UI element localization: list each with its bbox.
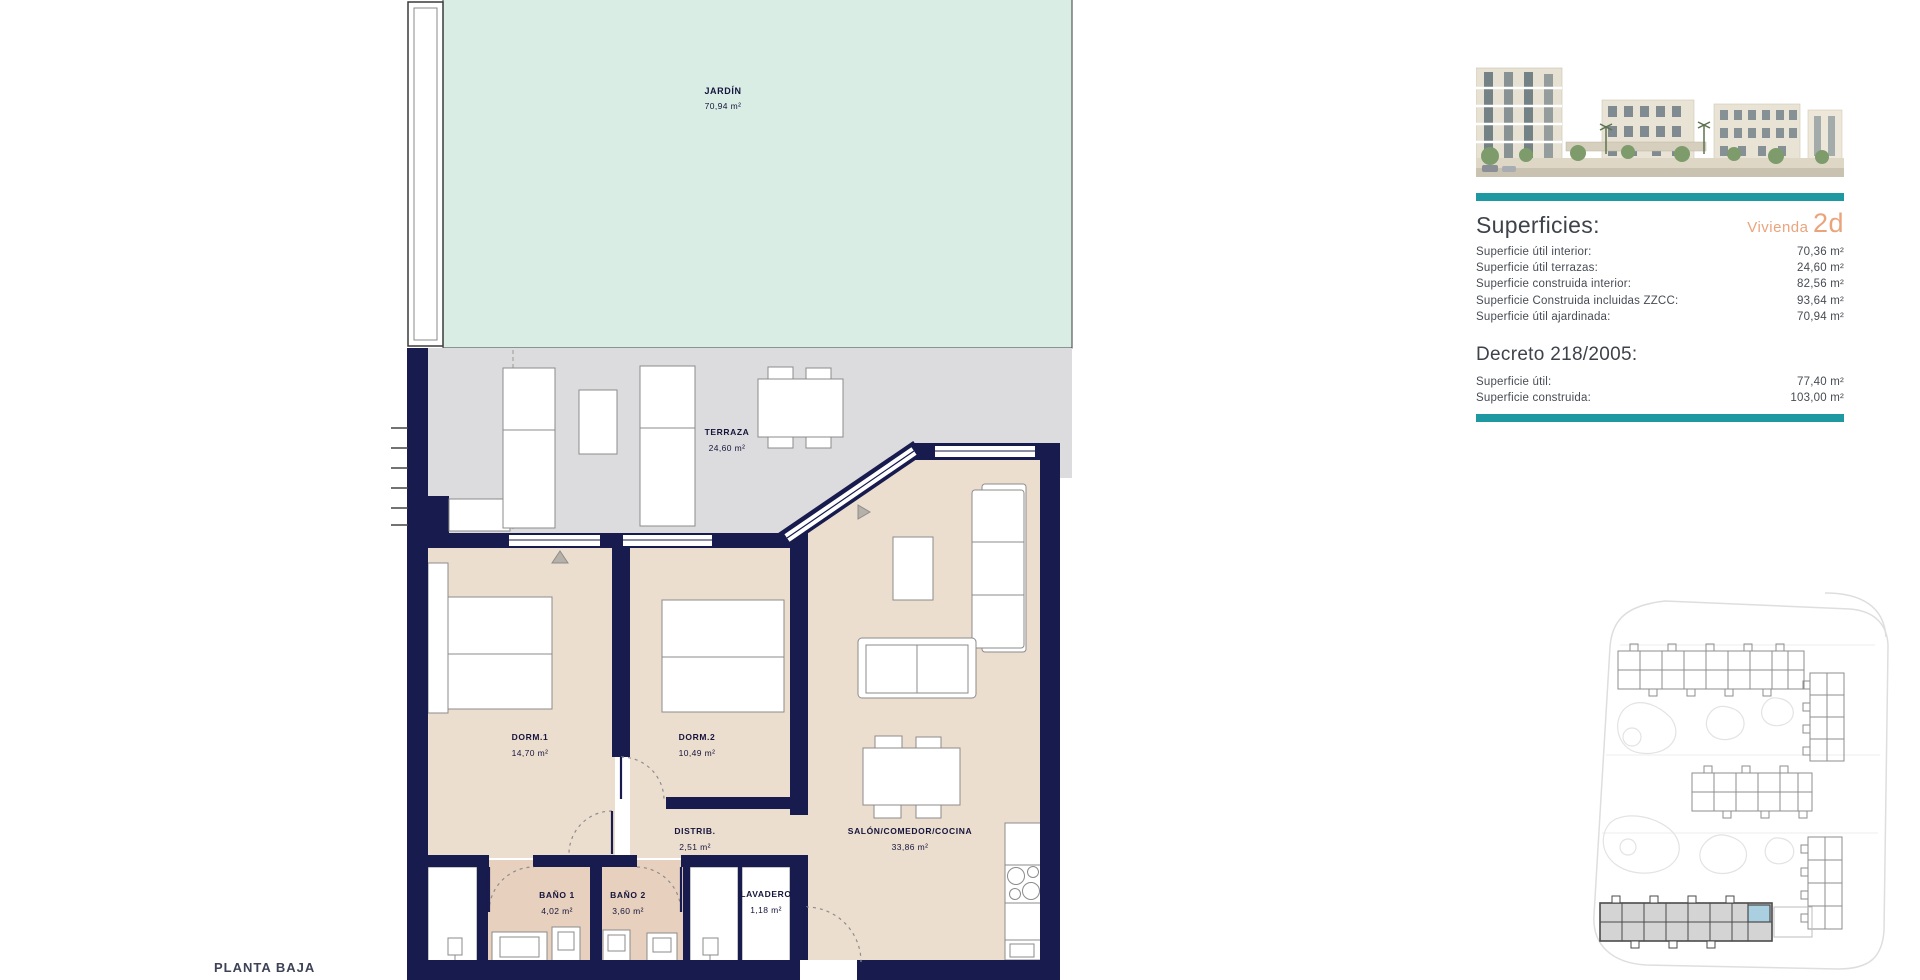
building-render — [1476, 54, 1844, 186]
teal-divider-bottom — [1476, 414, 1844, 422]
vivienda-label: Vivienda — [1747, 219, 1808, 236]
room-label-distrib: DISTRIB. — [674, 826, 715, 836]
site-row-highlighted — [1600, 896, 1812, 948]
site-row-middle — [1692, 766, 1812, 818]
room-area-salon: 33,86 m² — [892, 842, 929, 852]
decreto-row: Superficie construida:103,00 m² — [1476, 390, 1844, 406]
row-label: Superficie útil interior: — [1476, 244, 1592, 260]
row-value: 24,60 m² — [1797, 260, 1844, 276]
stair-ticks — [391, 428, 408, 525]
plan-title: PLANTA BAJA — [214, 960, 315, 975]
site-plan-highlighted-unit — [1748, 905, 1770, 922]
superficies-row: Superficie útil ajardinada:70,94 m² — [1476, 309, 1844, 325]
room-area-bano1: 4,02 m² — [541, 906, 573, 916]
superficies-row: Superficie útil terrazas:24,60 m² — [1476, 260, 1844, 276]
garden-area: JARDÍN 70,94 m² — [408, 0, 1072, 348]
superficies-row: Superficie Construida incluidas ZZCC:93,… — [1476, 293, 1844, 309]
row-value: 70,36 m² — [1797, 244, 1844, 260]
teal-divider-top — [1476, 193, 1844, 201]
row-value: 93,64 m² — [1797, 293, 1844, 309]
room-area-distrib: 2,51 m² — [679, 842, 711, 852]
room-label-bano1: BAÑO 1 — [539, 890, 575, 900]
room-label-dorm2: DORM.2 — [679, 732, 716, 742]
site-row-top — [1618, 644, 1804, 696]
row-label: Superficie útil terrazas: — [1476, 260, 1598, 276]
room-area-jardin: 70,94 m² — [705, 101, 742, 111]
room-label-terraza: TERRAZA — [705, 427, 750, 437]
superficies-row: Superficie útil interior:70,36 m² — [1476, 244, 1844, 260]
floor-plan: JARDÍN 70,94 m² TERRAZA 24,60 m² — [0, 0, 1100, 980]
decreto-rows: Superficie útil:77,40 m² Superficie cons… — [1476, 374, 1844, 406]
superficies-header: Superficies: Vivienda 2d — [1476, 208, 1844, 239]
row-label: Superficie útil ajardinada: — [1476, 309, 1611, 325]
room-area-lavadero: 1,18 m² — [750, 905, 782, 915]
decreto-row: Superficie útil:77,40 m² — [1476, 374, 1844, 390]
row-value: 70,94 m² — [1797, 309, 1844, 325]
superficies-title: Superficies: — [1476, 212, 1600, 239]
vivienda-tag: Vivienda 2d — [1747, 208, 1844, 239]
room-area-dorm1: 14,70 m² — [512, 748, 549, 758]
floorplan-sheet: JARDÍN 70,94 m² TERRAZA 24,60 m² — [0, 0, 1920, 980]
superficies-rows: Superficie útil interior:70,36 m² Superf… — [1476, 244, 1844, 325]
row-label: Superficie construida: — [1476, 390, 1591, 406]
site-plan — [1570, 585, 1920, 980]
room-area-bano2: 3,60 m² — [612, 906, 644, 916]
decreto-title: Decreto 218/2005: — [1476, 344, 1637, 366]
row-label: Superficie construida interior: — [1476, 276, 1631, 292]
room-area-dorm2: 10,49 m² — [679, 748, 716, 758]
site-stack-top — [1803, 673, 1844, 761]
room-label-dorm1: DORM.1 — [512, 732, 549, 742]
row-value: 77,40 m² — [1797, 374, 1844, 390]
row-value: 103,00 m² — [1790, 390, 1844, 406]
row-label: Superficie Construida incluidas ZZCC: — [1476, 293, 1678, 309]
vivienda-code: 2d — [1813, 208, 1844, 238]
room-label-jardin: JARDÍN — [704, 86, 741, 96]
superficies-row: Superficie construida interior:82,56 m² — [1476, 276, 1844, 292]
room-label-lavadero: LAVADERO — [740, 889, 791, 899]
site-stack-bottom — [1801, 837, 1842, 929]
room-area-terraza: 24,60 m² — [709, 443, 746, 453]
row-value: 82,56 m² — [1797, 276, 1844, 292]
row-label: Superficie útil: — [1476, 374, 1551, 390]
room-label-salon: SALÓN/COMEDOR/COCINA — [848, 825, 972, 836]
room-label-bano2: BAÑO 2 — [610, 890, 646, 900]
